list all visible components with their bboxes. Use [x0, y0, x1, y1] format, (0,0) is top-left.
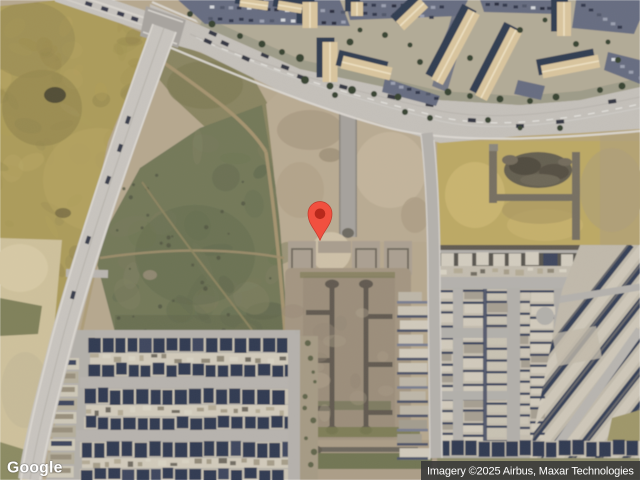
- svg-text:Google: Google: [7, 460, 63, 477]
- svg-text:Imagery ©2025 Airbus, Maxar Te: Imagery ©2025 Airbus, Maxar Technologies: [427, 466, 634, 478]
